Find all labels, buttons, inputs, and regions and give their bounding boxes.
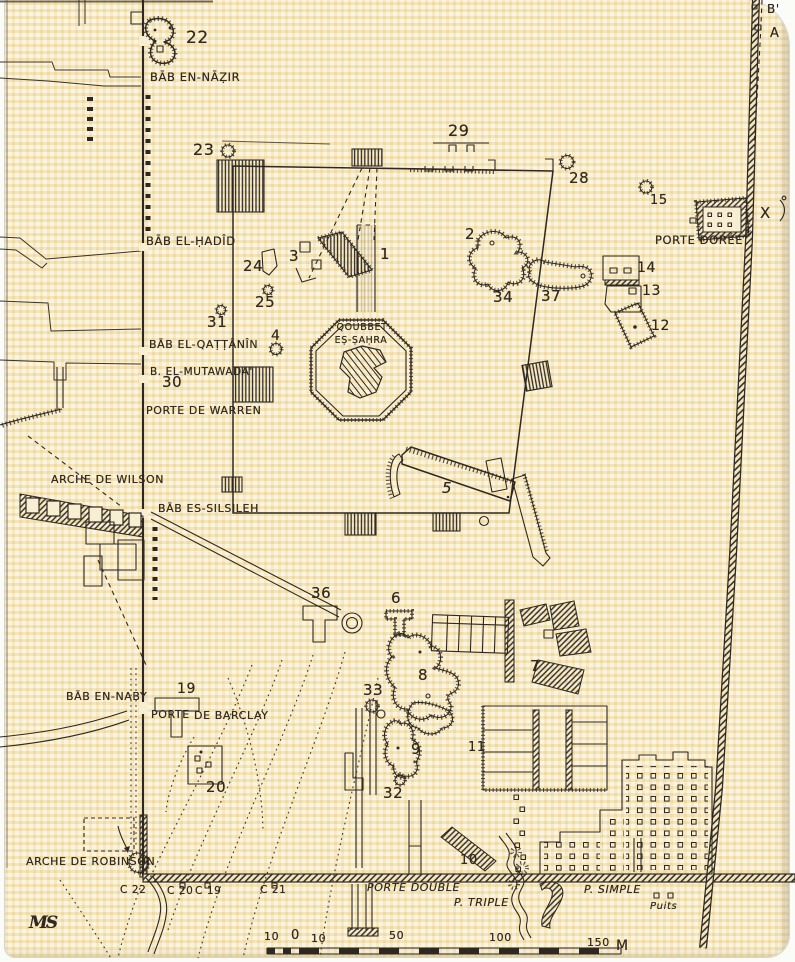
num-31: 31 [207, 315, 227, 330]
num-1: 1 [380, 247, 390, 262]
label-arche-de-wilson: ARCHE DE WILSON [51, 474, 164, 485]
num-7: 7 [530, 659, 540, 674]
label-qoubbet-line2: EṢ-ṢAḤRA [335, 336, 388, 346]
cartographer-monogram: MS [29, 915, 56, 932]
label-arche-de-robinson: ARCHE DE ROBINSON [26, 856, 155, 867]
num-36: 36 [311, 586, 331, 601]
scale-tick-0: 0 [291, 929, 300, 942]
num-4: 4 [271, 329, 281, 343]
num-8: 8 [418, 668, 428, 683]
num-23: 23 [193, 142, 215, 158]
label-porte-double: PORTE DOUBLE [367, 882, 460, 893]
label-bab-en-naby: BĀB EN-NABY [66, 691, 147, 702]
num-20: 20 [206, 780, 226, 795]
map-labels: 22BĀB EN-NĀẒIR23292815B'APORTE DORÉEXBĀB… [0, 0, 795, 962]
num-24: 24 [243, 259, 263, 274]
num-13: 13 [642, 284, 661, 298]
label-puits: Puits [650, 902, 677, 912]
label-porte-barclay-1: PORTE [151, 709, 190, 720]
label-x: X [760, 206, 771, 221]
label-bab-en-nazir: BĀB EN-NĀẒIR [150, 72, 240, 84]
num-15: 15 [650, 194, 668, 207]
ref-c22: C 22 [120, 885, 146, 896]
num-32: 32 [383, 786, 403, 801]
scale-tick-100: 100 [489, 932, 512, 943]
num-3: 3 [289, 249, 299, 264]
num-10: 10 [460, 854, 478, 867]
num-2: 2 [465, 227, 475, 242]
scale-tick-150: 150 [587, 937, 610, 948]
num-37: 37 [541, 289, 561, 304]
scale-tick-10-left: 10 [264, 931, 279, 942]
ref-c19: C 19 [195, 886, 221, 897]
label-porte-de-warren: PORTE DE WARREN [146, 405, 261, 416]
num-6: 6 [391, 591, 401, 606]
scale-unit: M [616, 939, 629, 953]
label-porte-doree: PORTE DORÉE [655, 235, 743, 247]
num-33: 33 [363, 683, 383, 698]
num-25: 25 [255, 295, 275, 310]
ref-c21: C 21 [260, 885, 286, 896]
label-p-triple: P. TRIPLE [454, 897, 509, 908]
label-bab-es-silsileh: BĀB ES-SILSILEH [158, 503, 259, 514]
label-p-simple: P. SIMPLE [584, 884, 641, 895]
label-qoubbet-line1: QOUBBET [337, 323, 388, 333]
num-5: 5 [442, 481, 452, 496]
label-porte-barclay-2: DE BARCLAY [194, 710, 269, 721]
num-28: 28 [569, 171, 589, 186]
label-bab-el-qattanin: BĀB EL-QAṬṬÂNÎN [149, 339, 258, 350]
num-14: 14 [637, 261, 656, 275]
scale-tick-10-right: 10 [311, 933, 326, 944]
num-22: 22 [186, 30, 209, 47]
num-34: 34 [493, 290, 513, 305]
num-12: 12 [651, 319, 670, 333]
num-29: 29 [448, 123, 470, 139]
ref-c20: C 20 [167, 886, 193, 897]
scale-tick-50: 50 [389, 930, 404, 941]
label-b-prime: B' [767, 3, 780, 15]
num-19: 19 [177, 682, 196, 696]
num-11: 11 [468, 741, 486, 754]
num-30: 30 [162, 375, 182, 390]
label-a: A [770, 27, 780, 40]
label-bab-el-hadid: BĀB EL-ḤADÎD [146, 236, 236, 248]
num-9: 9 [411, 742, 421, 757]
